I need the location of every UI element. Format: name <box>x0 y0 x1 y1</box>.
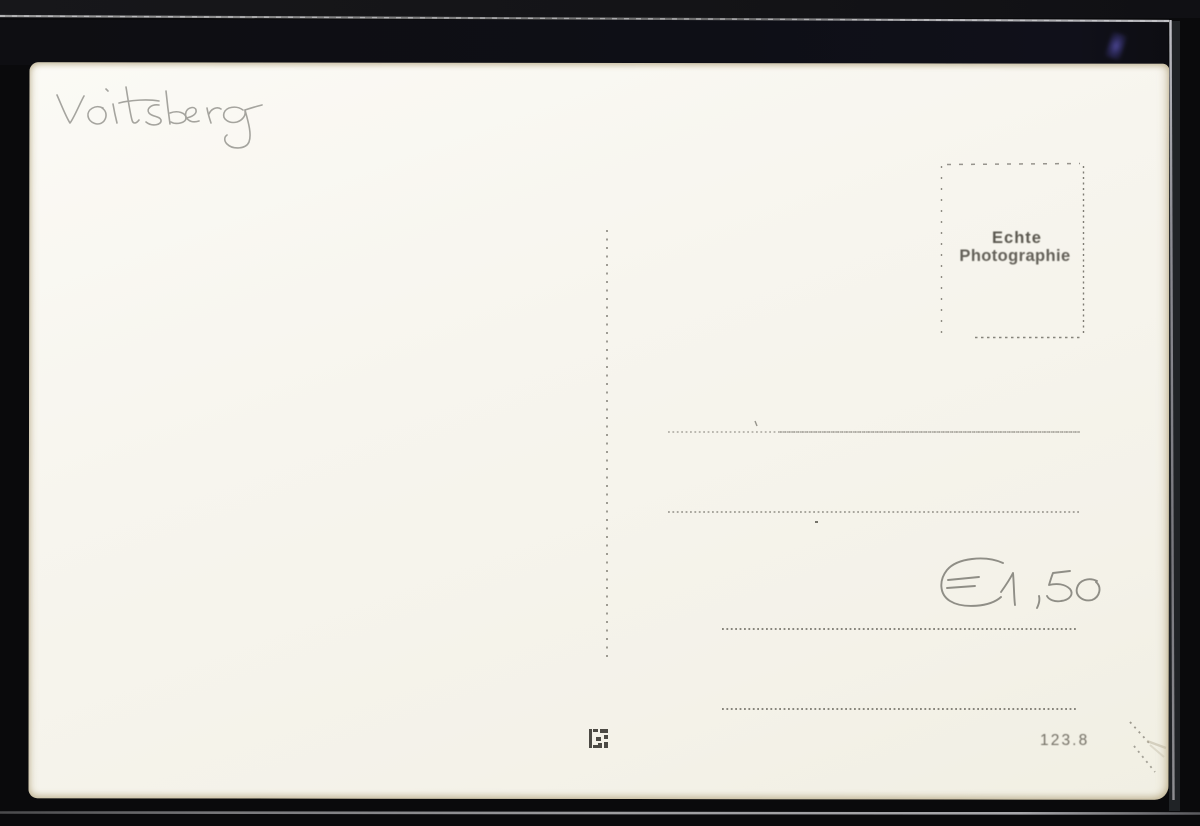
svg-text:Photographie: Photographie <box>959 247 1070 265</box>
svg-text:Echte: Echte <box>992 229 1042 247</box>
svg-text:123.8: 123.8 <box>1040 732 1089 749</box>
